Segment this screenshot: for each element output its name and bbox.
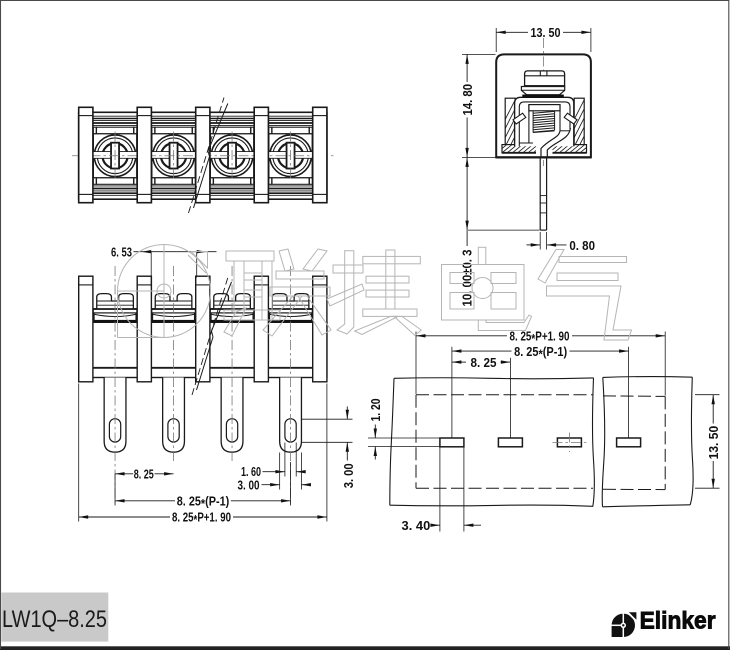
svg-text:10. 00±0. 3: 10. 00±0. 3 <box>460 249 474 306</box>
svg-text:13. 50: 13. 50 <box>706 426 721 460</box>
svg-text:8. 25*(P-1): 8. 25*(P-1) <box>514 344 567 362</box>
svg-text:8. 25: 8. 25 <box>134 467 154 482</box>
svg-text:13. 50: 13. 50 <box>531 25 561 40</box>
svg-text:LW1Q–8.25: LW1Q–8.25 <box>2 607 107 633</box>
svg-text:3. 00: 3. 00 <box>238 477 260 492</box>
svg-text:3. 40: 3. 40 <box>402 518 431 533</box>
svg-text:3. 00: 3. 00 <box>341 463 356 488</box>
svg-text:1. 20: 1. 20 <box>368 399 383 422</box>
svg-text:6. 53: 6. 53 <box>111 245 132 260</box>
svg-text:8. 25: 8. 25 <box>471 355 497 370</box>
svg-text:14. 80: 14. 80 <box>460 84 475 116</box>
svg-text:0. 80: 0. 80 <box>569 238 595 253</box>
svg-text:8. 25*(P-1): 8. 25*(P-1) <box>177 493 230 511</box>
svg-text:Elinker: Elinker <box>640 608 716 635</box>
svg-text:8. 25*P+1. 90: 8. 25*P+1. 90 <box>172 510 231 528</box>
